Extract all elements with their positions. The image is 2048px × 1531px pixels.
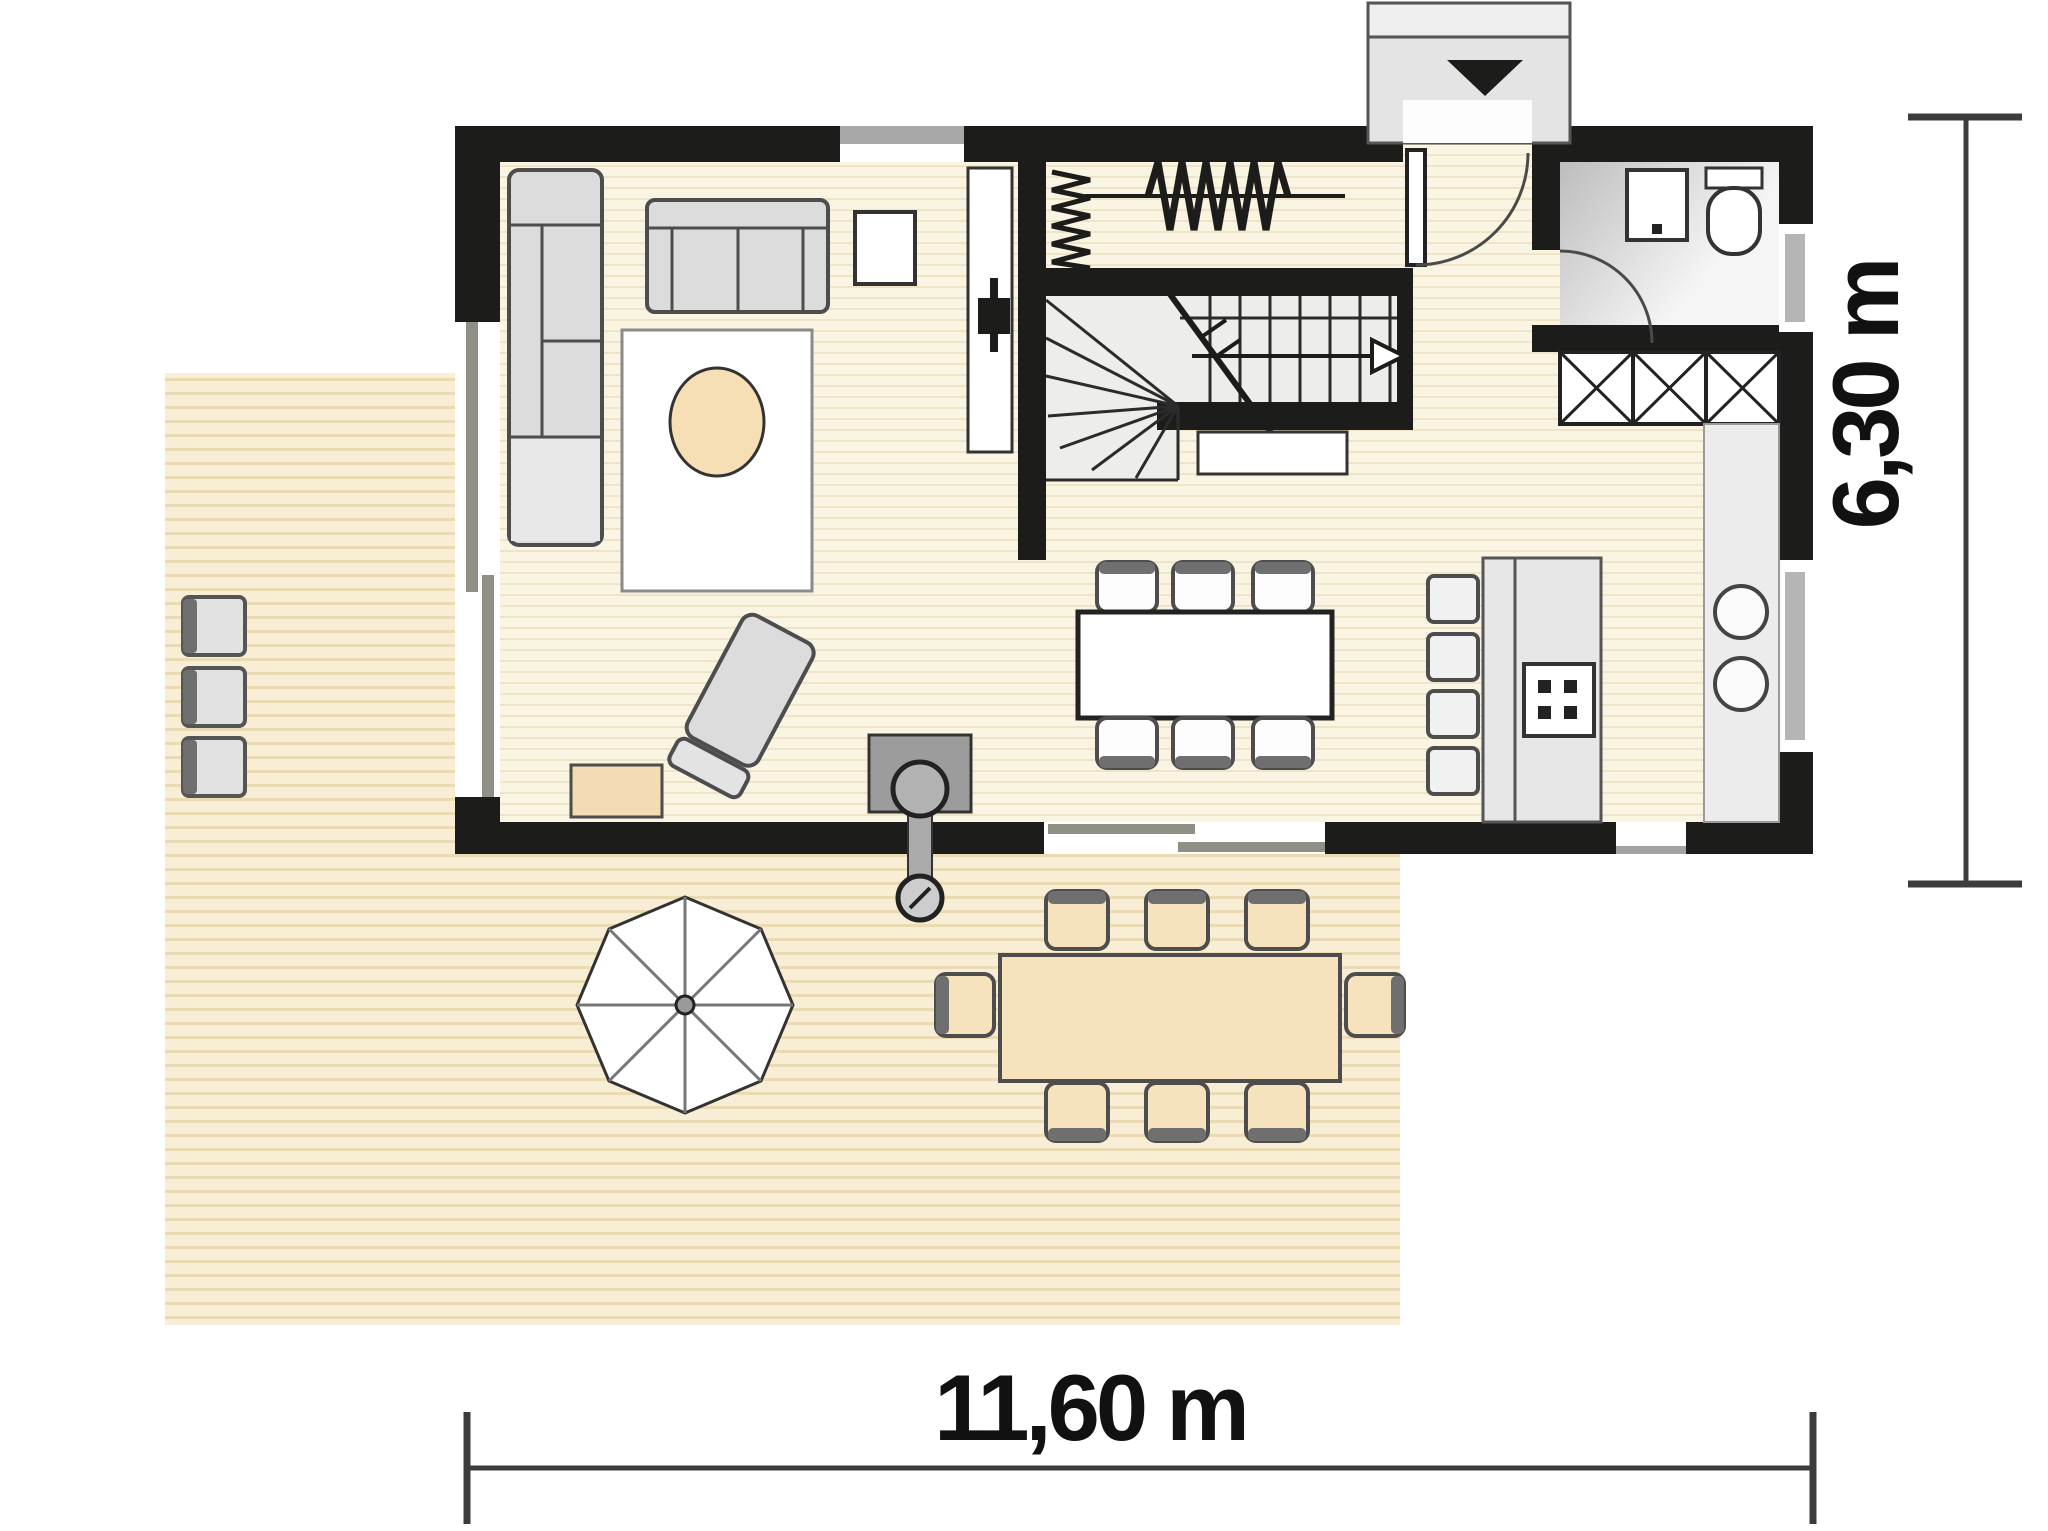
wall-top-middle <box>964 126 1403 162</box>
floor-plan-drawing: 11,60 m 6,30 m <box>0 0 2048 1531</box>
sliding-door-left-panel-2 <box>482 575 494 797</box>
tv-stand-icon <box>978 298 1010 334</box>
dining-area <box>1078 562 1332 768</box>
wall-stair-end <box>1397 268 1413 430</box>
window-kitchen-pane <box>1785 572 1805 740</box>
wall-right-middle <box>1779 332 1813 560</box>
outdoor-chair <box>1246 891 1308 949</box>
under-stair-sideboard <box>1198 432 1347 474</box>
dining-chairs-top <box>1097 562 1313 612</box>
stair-run-floor <box>1046 296 1397 402</box>
bar-stool <box>1428 576 1478 622</box>
entrance-porch-step <box>1370 5 1568 35</box>
wall-stair-bottom <box>1157 402 1413 430</box>
outdoor-chair <box>936 974 994 1036</box>
cooktop-burner-icon <box>1564 706 1577 719</box>
coffee-table <box>670 368 764 476</box>
outdoor-table <box>1000 955 1340 1081</box>
lounger <box>183 738 245 796</box>
wall-partition-living <box>1018 162 1046 560</box>
window-top-sill <box>840 126 964 144</box>
window-bottom-sill <box>1616 846 1686 854</box>
bar-stool <box>1428 634 1478 680</box>
lounger <box>183 597 245 655</box>
hall-wardrobe <box>1560 352 1779 424</box>
floor-mat <box>571 765 662 817</box>
bathroom-sink-drain-icon <box>1652 224 1662 234</box>
outdoor-chair <box>1346 974 1404 1036</box>
dining-chair <box>1097 562 1157 612</box>
wall-stair-top <box>1046 268 1413 296</box>
dining-chairs-bottom <box>1097 718 1313 768</box>
dining-chair <box>1253 562 1313 612</box>
sofa-chaise <box>511 439 600 541</box>
wall-right-upper <box>1779 126 1813 224</box>
house <box>455 3 1813 920</box>
wall-bathroom-left <box>1532 126 1560 250</box>
toilet-bowl <box>1708 188 1760 254</box>
wall-bottom-middle <box>1325 822 1616 854</box>
dining-chair <box>1097 718 1157 768</box>
wall-left-upper <box>455 126 500 322</box>
dining-table <box>1078 612 1332 718</box>
cooktop-burner-icon <box>1538 706 1551 719</box>
lounger <box>183 668 245 726</box>
bathroom-door-leaf <box>1560 336 1652 350</box>
tv-board <box>968 168 1012 452</box>
dimension-right: 6,30 m <box>1813 117 2022 884</box>
bar-stool <box>1428 748 1478 794</box>
dining-chair <box>1173 718 1233 768</box>
outdoor-chair <box>1146 891 1208 949</box>
cooktop <box>1524 664 1594 736</box>
entry-door-leaf <box>1407 150 1425 265</box>
wall-top-right <box>1532 126 1813 162</box>
toilet-tank <box>1706 168 1762 188</box>
sliding-door-bottom-panel-1 <box>1048 824 1195 834</box>
sliding-door-left-panel-1 <box>466 322 478 592</box>
window-top <box>840 144 964 162</box>
sofa <box>647 200 828 312</box>
outdoor-chair <box>1246 1083 1308 1141</box>
stove-flue-icon <box>893 762 947 816</box>
dining-chair <box>1173 562 1233 612</box>
cooktop-burner-icon <box>1538 680 1551 693</box>
corner-sofa <box>509 170 602 545</box>
height-dimension-label: 6,30 m <box>1813 261 1918 530</box>
kitchen-sink-bowl-2 <box>1715 658 1767 710</box>
entrance-threshold <box>1403 100 1532 143</box>
wall-top-left <box>455 126 840 162</box>
side-table <box>855 212 915 284</box>
sliding-door-bottom-panel-2 <box>1178 842 1325 852</box>
dimension-bottom: 11,60 m <box>467 1355 1813 1524</box>
outdoor-chair <box>1046 1083 1108 1141</box>
wall-bottom-left <box>455 822 1044 854</box>
wall-right-lower <box>1779 752 1813 854</box>
outdoor-chair <box>1146 1083 1208 1141</box>
cooktop-burner-icon <box>1564 680 1577 693</box>
dining-chair <box>1253 718 1313 768</box>
terrace-loungers <box>183 597 245 796</box>
window-bathroom-pane <box>1785 234 1805 322</box>
floor-plan-canvas: 11,60 m 6,30 m <box>0 0 2048 1531</box>
outdoor-chair <box>1046 891 1108 949</box>
kitchen-sink-bowl-1 <box>1715 586 1767 638</box>
parasol-icon <box>577 897 793 1113</box>
width-dimension-label: 11,60 m <box>934 1355 1246 1460</box>
bar-stool <box>1428 691 1478 737</box>
